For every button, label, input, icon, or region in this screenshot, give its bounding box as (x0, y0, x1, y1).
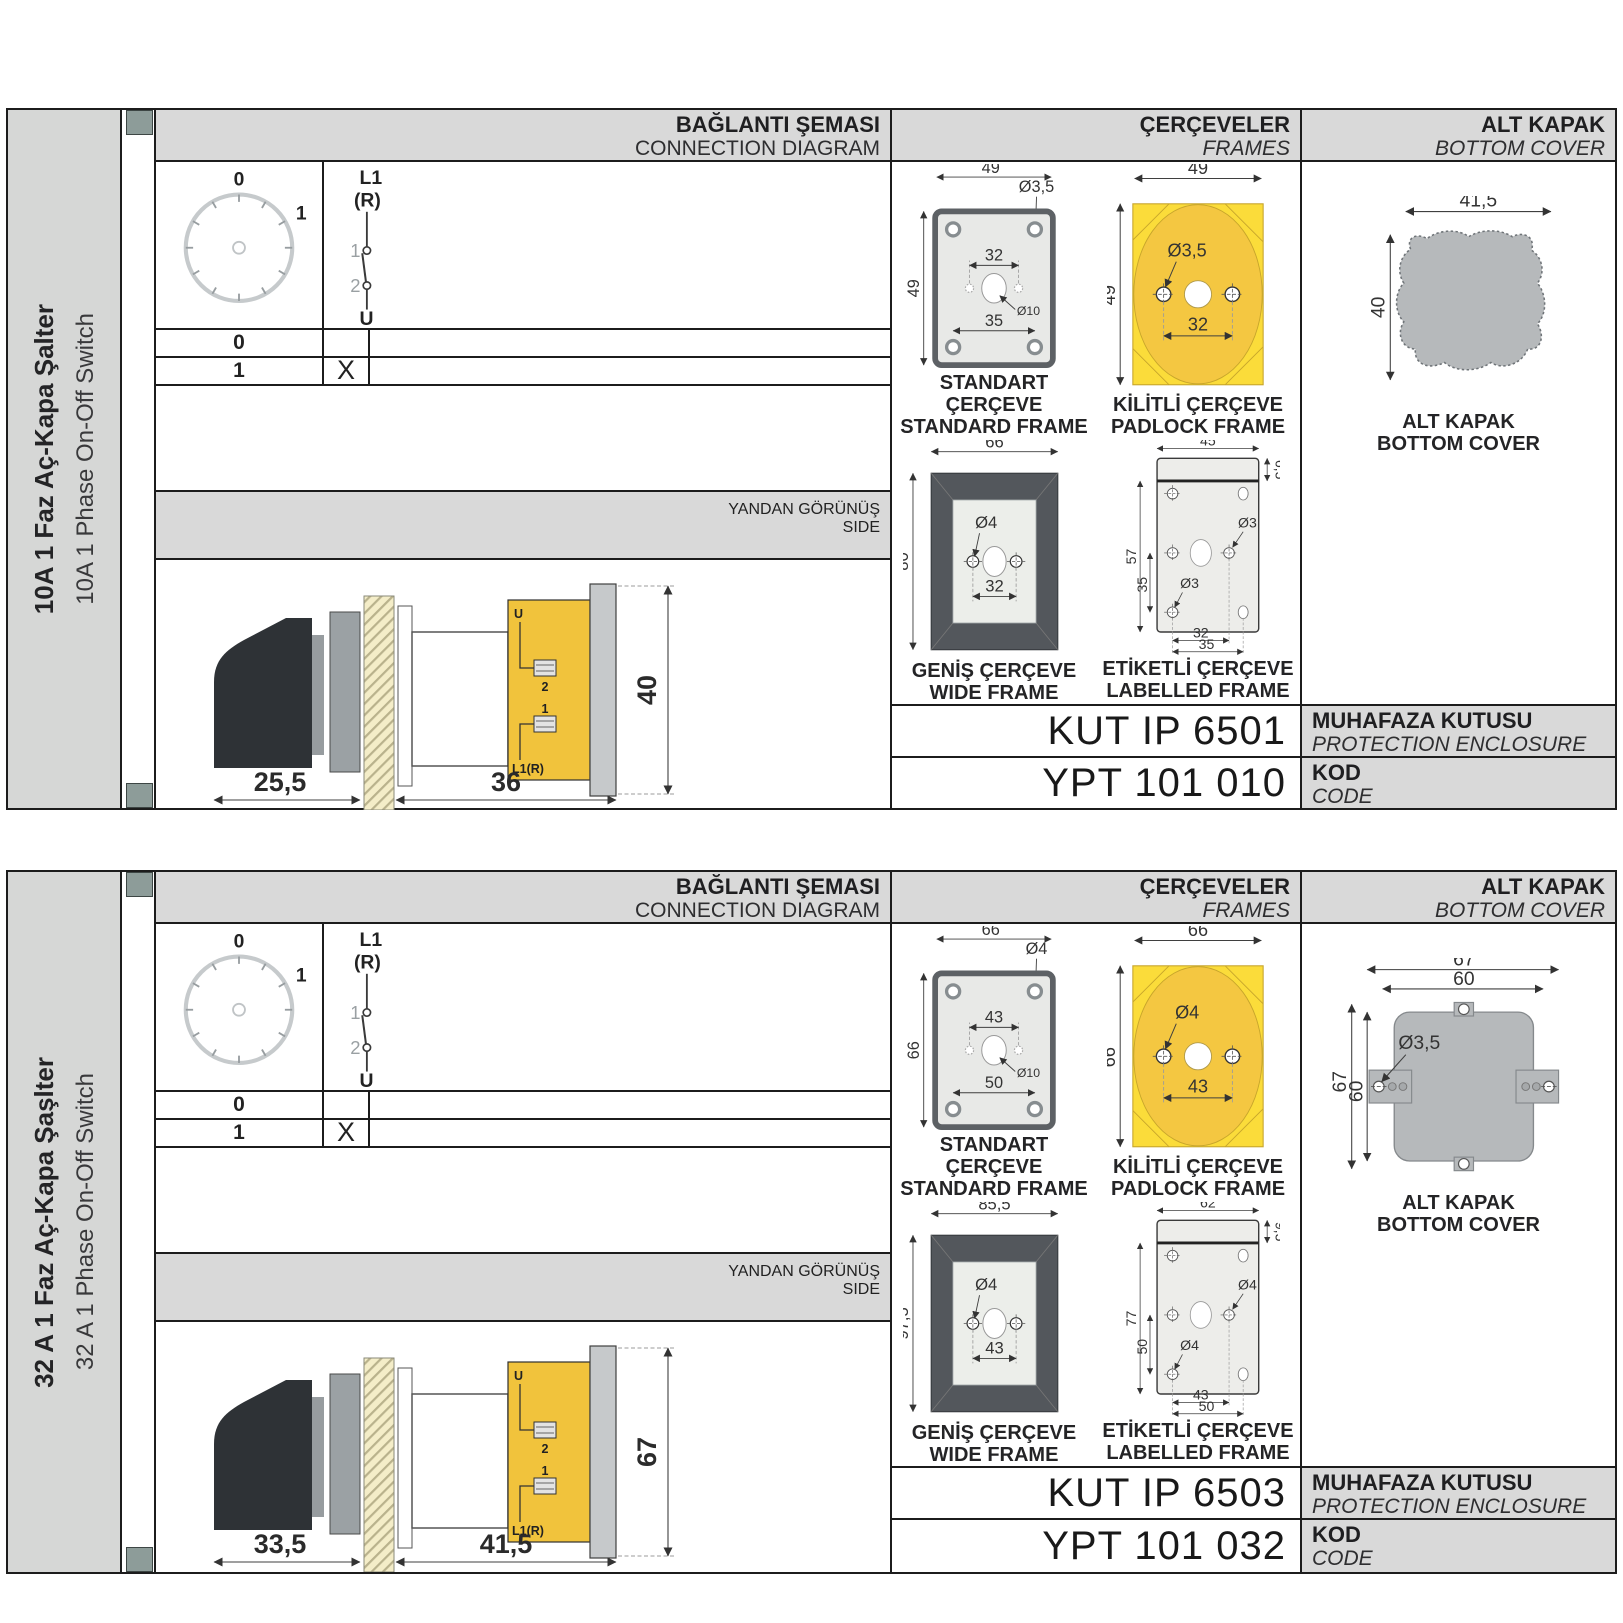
header-title-en: CONNECTION DIAGRAM (156, 899, 880, 922)
labelled-frame-drawing: 45 6,5 (1116, 440, 1280, 656)
code-label-en: CODE (1312, 785, 1615, 808)
dim-corner-hole: Ø3,5 (1019, 178, 1054, 196)
registration-square-bottom (126, 1547, 153, 1572)
cover-outline (1396, 231, 1544, 370)
dim-inner-height: 50 (1134, 1339, 1150, 1355)
cover-title-en: BOTTOM COVER (1302, 899, 1605, 922)
dim-front-depth: 25,5 (254, 767, 307, 797)
switch-body (412, 632, 508, 766)
product-title-english: 10A 1 Phase On-Off Switch (72, 313, 100, 605)
bottom-cover-drawing-cell: 67 60 67 60 (1302, 924, 1615, 1466)
dim-span-2: 50 (1199, 1398, 1215, 1414)
symbol-line-label2: (R) (354, 189, 381, 211)
frames-header: ÇERÇEVELER FRAMES (892, 110, 1300, 162)
registration-square-bottom (126, 783, 153, 808)
wide-frame-cell: 66 80 (892, 438, 1096, 704)
symbol-u-label: U (360, 308, 374, 328)
dial-position-0: 0 (234, 931, 245, 952)
code-label-tr: KOD (1312, 760, 1615, 785)
table-row: 0 (156, 330, 890, 358)
switch-handle (214, 618, 312, 768)
dim-frame-width: 49 (1188, 164, 1208, 178)
connection-diagram-header: BAĞLANTI ŞEMASI CONNECTION DIAGRAM (156, 872, 890, 924)
dim-frame-width: 62 (1200, 1202, 1216, 1211)
dial-position-1: 1 (296, 203, 307, 224)
dim-frame-height: 66 (1107, 1047, 1119, 1067)
dim-frame-width: 66 (982, 926, 1000, 939)
dim-frame-height: 66 (905, 1041, 923, 1059)
wide-frame-drawing: 66 80 (903, 440, 1086, 658)
enclosure-code-value: KUT IP 6501 (890, 704, 1300, 756)
contact-2-label: 2 (350, 275, 360, 296)
side-view-header: YANDAN GÖRÜNÜŞ SIDE (156, 1252, 890, 1322)
wide-frame-caption-en: WIDE FRAME (912, 1444, 1076, 1466)
dim-span: 32 (1188, 314, 1208, 334)
standard-frame-caption-en: STANDARD FRAME (892, 1178, 1096, 1200)
table-row: 1 X (156, 1120, 890, 1148)
diagram-row: 0 1 L1 (R) 1 2 U (156, 924, 890, 1092)
symbol-line-label: L1 (360, 167, 383, 189)
terminal-1-label: 1 (542, 702, 549, 716)
symbol-line-label: L1 (360, 929, 383, 951)
padlock-frame-caption-en: PADLOCK FRAME (1111, 416, 1285, 438)
padlock-frame-drawing: 66 66 (1107, 926, 1289, 1154)
side-view-area: U 2 1 L1(R) 40 (156, 560, 890, 808)
table-contact-cell (324, 330, 370, 356)
standard-frame-caption-tr: STANDART ÇERÇEVE (892, 372, 1096, 416)
dim-label-strip: 6,5 (1273, 460, 1280, 480)
dim-center-hole: Ø10 (1017, 304, 1040, 318)
side-view-header: YANDAN GÖRÜNÜŞ SIDE (156, 490, 890, 560)
dim-inner-height: 35 (1134, 577, 1150, 593)
side-view-title-tr: YANDAN GÖRÜNÜŞ (156, 501, 880, 519)
contact-1-label: 1 (350, 1002, 360, 1023)
side-view-title-en: SIDE (156, 1281, 880, 1299)
dim-frame-height: 57 (1123, 548, 1139, 564)
dim-lower-span: 50 (985, 1074, 1003, 1092)
code-label-tr: KOD (1312, 1522, 1615, 1547)
enclosure-label-en: PROTECTION ENCLOSURE (1312, 733, 1615, 756)
switch-body (412, 1394, 508, 1528)
labelled-frame-drawing: 62 9,5 (1116, 1202, 1280, 1418)
bottom-cover-header: ALT KAPAK BOTTOM COVER (1302, 872, 1615, 924)
wide-frame-cell: 85,5 97,5 (892, 1200, 1096, 1466)
switch-handle (214, 1380, 312, 1530)
dial-position-0: 0 (234, 169, 245, 190)
side-view-title-en: SIDE (156, 519, 880, 537)
standard-frame-caption-tr: STANDART ÇERÇEVE (892, 1134, 1096, 1178)
terminal-u-label: U (514, 607, 523, 621)
registration-square-top (126, 872, 153, 897)
standard-frame-drawing: 66 Ø4 66 Ø10 (903, 926, 1085, 1132)
frames-grid: 66 Ø4 66 Ø10 (892, 924, 1300, 1466)
standard-frame-drawing: 49 Ø3,5 49 Ø10 (903, 164, 1085, 370)
frames-title-tr: ÇERÇEVELER (892, 113, 1290, 137)
padlock-frame-caption-en: PADLOCK FRAME (1111, 1178, 1285, 1200)
table-row: 0 (156, 1092, 890, 1120)
registration-square-top (126, 110, 153, 135)
dim-frame-height: 49 (905, 279, 923, 297)
dim-back-depth: 36 (491, 767, 521, 797)
switch-symbol-area: L1 (R) 1 2 U (326, 162, 890, 328)
dim-span: 43 (985, 1338, 1004, 1357)
contact-1-label: 1 (350, 240, 360, 261)
cover-bottom-tab (1454, 1157, 1473, 1171)
cover-title-en: BOTTOM COVER (1302, 137, 1605, 160)
selector-dial-drawing: 0 1 (161, 167, 317, 323)
table-position-label: 0 (156, 1092, 324, 1118)
cover-top-tab (1454, 1002, 1473, 1016)
frames-header: ÇERÇEVELER FRAMES (892, 872, 1300, 924)
dim-label-strip: 9,5 (1273, 1222, 1280, 1242)
dim-frame-height: 77 (1123, 1310, 1139, 1326)
selector-dial-cell: 0 1 (156, 162, 324, 328)
bottom-cover-drawing: 41,5 40 (1309, 196, 1609, 409)
dim-center-hole: Ø10 (1017, 1066, 1040, 1080)
dim-frame-width: 45 (1200, 440, 1216, 449)
standard-frame-cell: 66 Ø4 66 Ø10 (892, 924, 1096, 1200)
dim-hole-1: Ø3 (1180, 575, 1199, 591)
product-title-english: 32 A 1 Phase On-Off Switch (72, 1073, 100, 1370)
diagram-row: 0 1 L1 (R) 1 2 U (156, 162, 890, 330)
table-position-label: 1 (156, 1120, 324, 1146)
dim-frame-width: 85,5 (978, 1202, 1010, 1214)
header-title-en: CONNECTION DIAGRAM (156, 137, 880, 160)
dim-frame-height: 49 (1107, 285, 1119, 305)
dim-back-depth: 41,5 (480, 1529, 533, 1559)
sidebar-product-title: 32 A 1 Faz Aç-Kapa Şaşlter 32 A 1 Phase … (8, 872, 122, 1572)
terminal-u-label: U (514, 1369, 523, 1383)
dim-height: 67 (632, 1437, 662, 1467)
product-title-turkish: 32 A 1 Faz Aç-Kapa Şaşlter (29, 1057, 60, 1388)
padlock-frame-caption-tr: KİLİTLİ ÇERÇEVE (1111, 394, 1285, 416)
padlock-frame-cell: 66 66 (1096, 924, 1300, 1200)
wide-frame-caption-tr: GENİŞ ÇERÇEVE (912, 1422, 1076, 1444)
bottom-cover-drawing-cell: 41,5 40 ALT KAPAK BOTTOM COVER (1302, 162, 1615, 704)
mounting-panel-hatch (364, 1358, 394, 1572)
enclosure-code-label: MUHAFAZA KUTUSU PROTECTION ENCLOSURE (1300, 1466, 1615, 1518)
switch-symbol-drawing: L1 (R) 1 2 U (326, 162, 476, 328)
table-position-label: 1 (156, 358, 324, 384)
dim-frame-width: 66 (985, 440, 1004, 452)
dim-span: 43 (1188, 1076, 1208, 1096)
standard-frame-cell: 49 Ø3,5 49 Ø10 (892, 162, 1096, 438)
labelled-frame-caption-tr: ETİKETLİ ÇERÇEVE (1102, 658, 1293, 680)
dim-front-depth: 33,5 (254, 1529, 307, 1559)
sidebar-product-title: 10A 1 Faz Aç-Kapa Şalter 10A 1 Phase On-… (8, 110, 122, 808)
dim-hole-1: Ø4 (1180, 1337, 1199, 1353)
bottom-cover-drawing: 67 60 67 60 (1309, 958, 1609, 1190)
enclosure-code-label: MUHAFAZA KUTUSU PROTECTION ENCLOSURE (1300, 704, 1615, 756)
frames-title-tr: ÇERÇEVELER (892, 875, 1290, 899)
dim-frame-width: 49 (982, 164, 1000, 177)
selector-dial-drawing: 0 1 (161, 929, 317, 1085)
labelled-frame-caption-tr: ETİKETLİ ÇERÇEVE (1102, 1420, 1293, 1442)
switch-symbol-area: L1 (R) 1 2 U (326, 924, 890, 1090)
labelled-frame-caption-en: LABELLED FRAME (1102, 680, 1293, 702)
frames-title-en: FRAMES (892, 899, 1290, 922)
terminal-block: U 2 1 L1(R) (508, 1362, 590, 1542)
dim-cover-height-inner: 60 (1346, 1081, 1367, 1103)
dim-corner-hole: Ø4 (1026, 940, 1048, 958)
cover-caption-en: BOTTOM COVER (1377, 1214, 1540, 1236)
enclosure-label-tr: MUHAFAZA KUTUSU (1312, 708, 1615, 733)
cover-title-tr: ALT KAPAK (1302, 875, 1605, 899)
switch-symbol-drawing: L1 (R) 1 2 U (326, 924, 476, 1090)
side-view-drawing: U 2 1 L1(R) 67 (156, 1322, 892, 1572)
bottom-cover-header: ALT KAPAK BOTTOM COVER (1302, 110, 1615, 162)
padlock-frame-cell: 49 49 (1096, 162, 1300, 438)
dim-height: 40 (632, 675, 662, 705)
connection-diagram-column: BAĞLANTI ŞEMASI CONNECTION DIAGRAM 0 (154, 110, 890, 808)
connection-diagram-column: BAĞLANTI ŞEMASI CONNECTION DIAGRAM 0 (154, 872, 890, 1572)
side-view-area: U 2 1 L1(R) 67 (156, 1322, 890, 1572)
dim-inner-span: 32 (985, 246, 1003, 264)
table-position-label: 0 (156, 330, 324, 356)
padlock-frame-caption-tr: KİLİTLİ ÇERÇEVE (1111, 1156, 1285, 1178)
symbol-u-label: U (360, 1070, 374, 1090)
dim-cover-hole: Ø3,5 (1398, 1033, 1440, 1054)
frames-title-en: FRAMES (892, 137, 1290, 160)
table-contact-cell: X (324, 1120, 370, 1146)
dim-hole: Ø4 (1175, 1002, 1199, 1022)
labelled-frame-cell: 45 6,5 (1096, 438, 1300, 704)
product-section-10a: 10A 1 Faz Aç-Kapa Şalter 10A 1 Phase On-… (6, 108, 1617, 810)
dim-hole-2: Ø4 (1238, 1277, 1257, 1293)
code-label-en: CODE (1312, 1547, 1615, 1570)
dim-cover-height: 40 (1367, 297, 1389, 319)
product-code-value: YPT 101 010 (890, 756, 1300, 808)
enclosure-label-tr: MUHAFAZA KUTUSU (1312, 1470, 1615, 1495)
dim-cover-width-inner: 60 (1453, 969, 1475, 990)
dim-frame-height: 97,5 (903, 1307, 912, 1339)
mounting-panel-hatch (364, 596, 394, 810)
table-contact-cell: X (324, 358, 370, 384)
cover-left-ear (1369, 1070, 1412, 1103)
connection-diagram-header: BAĞLANTI ŞEMASI CONNECTION DIAGRAM (156, 110, 890, 162)
terminal-2-label: 2 (542, 1442, 549, 1456)
header-title-tr: BAĞLANTI ŞEMASI (156, 875, 880, 899)
dim-hole: Ø4 (975, 1275, 997, 1294)
cover-title-tr: ALT KAPAK (1302, 113, 1605, 137)
wide-frame-caption-en: WIDE FRAME (912, 682, 1076, 704)
dim-frame-height: 80 (903, 552, 912, 571)
terminal-2-label: 2 (542, 680, 549, 694)
symbol-line-label2: (R) (354, 951, 381, 973)
standard-frame-caption-en: STANDARD FRAME (892, 416, 1096, 438)
cover-caption-en: BOTTOM COVER (1377, 433, 1540, 455)
contact-2-label: 2 (350, 1037, 360, 1058)
terminal-1-label: 1 (542, 1464, 549, 1478)
product-code-label: KOD CODE (1300, 1518, 1615, 1572)
enclosure-label-en: PROTECTION ENCLOSURE (1312, 1495, 1615, 1518)
table-contact-cell (324, 1092, 370, 1118)
frames-grid: 49 Ø3,5 49 Ø10 (892, 162, 1300, 704)
dim-hole: Ø3,5 (1168, 240, 1207, 260)
dim-span: 32 (985, 576, 1004, 595)
product-code-label: KOD CODE (1300, 756, 1615, 808)
product-code-value: YPT 101 032 (890, 1518, 1300, 1572)
dim-span-2: 35 (1199, 636, 1215, 652)
dim-frame-width: 66 (1188, 926, 1208, 940)
cover-caption-tr: ALT KAPAK (1377, 411, 1540, 433)
product-title-turkish: 10A 1 Faz Aç-Kapa Şalter (29, 304, 60, 614)
padlock-frame-drawing: 49 49 (1107, 164, 1289, 392)
labelled-frame-cell: 62 9,5 (1096, 1200, 1300, 1466)
table-row: 1 X (156, 358, 890, 386)
dim-inner-span: 43 (985, 1008, 1003, 1026)
wide-frame-caption-tr: GENİŞ ÇERÇEVE (912, 660, 1076, 682)
header-title-tr: BAĞLANTI ŞEMASI (156, 113, 880, 137)
dim-cover-width: 41,5 (1459, 196, 1497, 212)
dim-hole: Ø4 (975, 513, 997, 532)
terminal-block: U 2 1 L1(R) (508, 600, 590, 780)
product-section-32a: 32 A 1 Faz Aç-Kapa Şaşlter 32 A 1 Phase … (6, 870, 1617, 1574)
dial-position-1: 1 (296, 965, 307, 986)
side-view-title-tr: YANDAN GÖRÜNÜŞ (156, 1263, 880, 1281)
labelled-frame-caption-en: LABELLED FRAME (1102, 1442, 1293, 1464)
dim-lower-span: 35 (985, 312, 1003, 330)
cover-right-ear (1516, 1070, 1559, 1103)
selector-dial-cell: 0 1 (156, 924, 324, 1090)
enclosure-code-value: KUT IP 6503 (890, 1466, 1300, 1518)
side-view-drawing: U 2 1 L1(R) 40 (156, 560, 892, 810)
wide-frame-drawing: 85,5 97,5 (903, 1202, 1086, 1420)
cover-caption-tr: ALT KAPAK (1377, 1192, 1540, 1214)
dim-hole-2: Ø3 (1238, 515, 1257, 531)
